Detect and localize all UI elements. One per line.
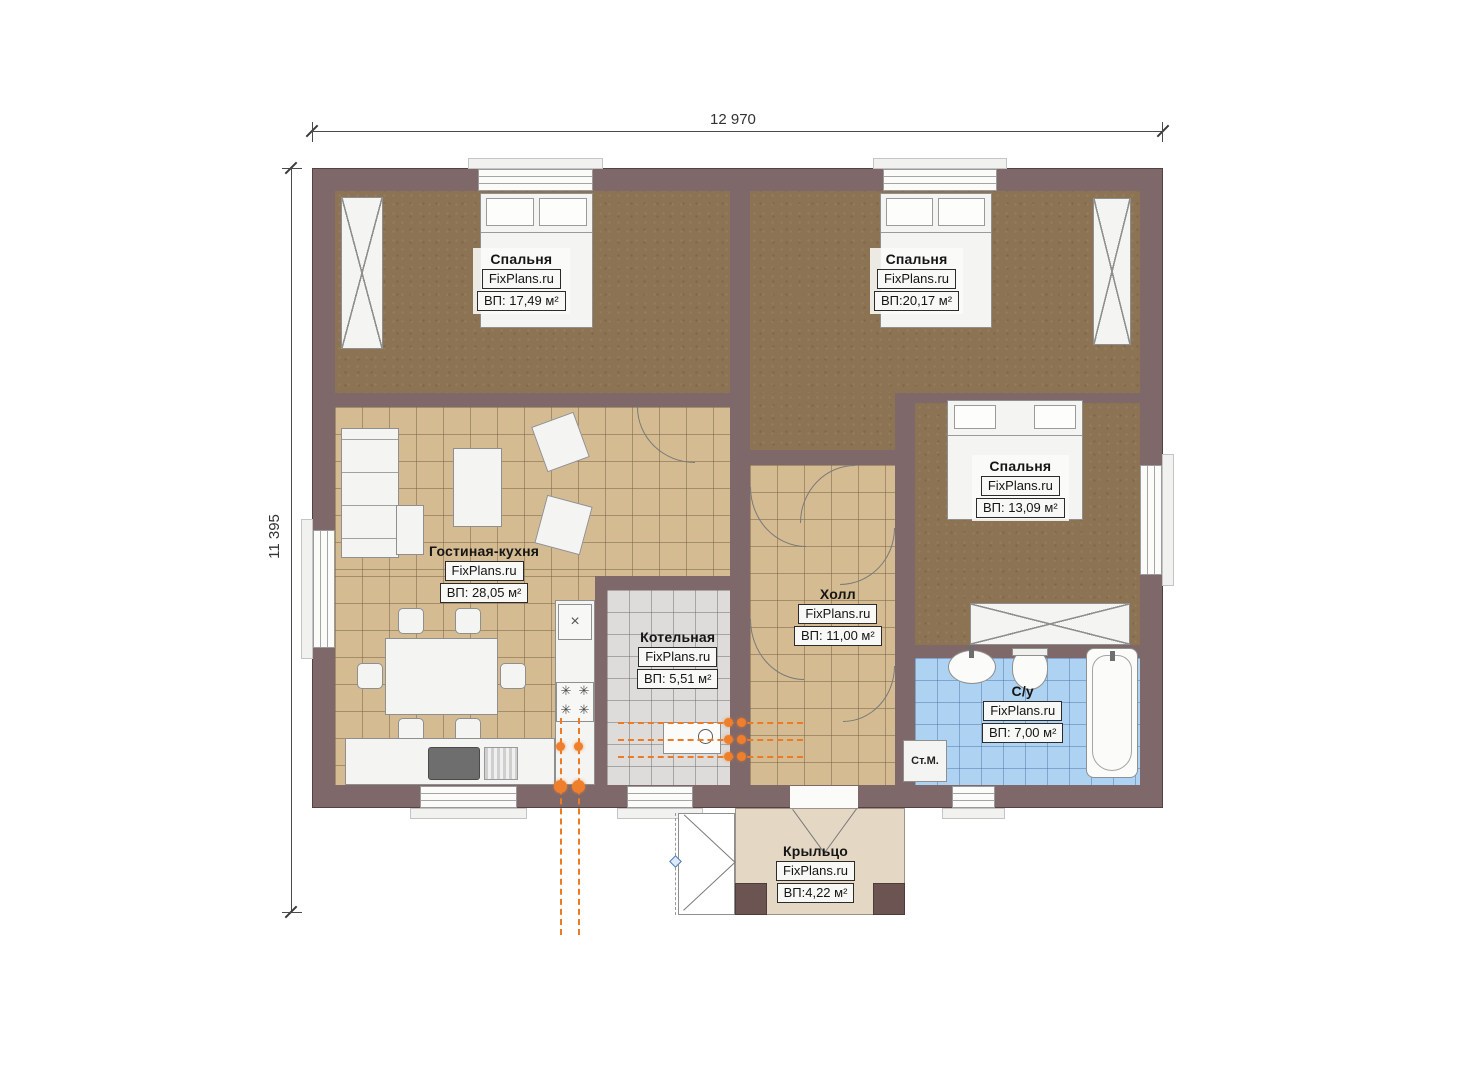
room-name: Спальня: [989, 458, 1051, 474]
porch-pillar: [873, 883, 905, 915]
room-area: ВП: 11,00 м²: [794, 626, 882, 646]
burner-icon: ✳: [575, 683, 593, 702]
gas-node: [554, 780, 567, 793]
bathtub: [1086, 648, 1138, 778]
room-name: С/у: [1012, 683, 1034, 699]
brand-label: FixPlans.ru: [981, 476, 1060, 496]
room-label-porch: Крыльцо FixPlans.ru ВП:4,22 м²: [772, 840, 859, 906]
stove: ✳ ✳ ✳ ✳: [556, 682, 594, 722]
partition-wall: [595, 576, 607, 785]
dimension-width-label: 12 970: [710, 111, 756, 128]
gas-node: [556, 742, 565, 751]
heating-line: [618, 756, 803, 758]
window: [313, 530, 335, 648]
window-sill: [942, 808, 1005, 819]
partition-wall: [858, 450, 895, 465]
porch-pillar: [735, 883, 767, 915]
dining-table: [385, 638, 498, 715]
room-label-bedroom-2: Спальня FixPlans.ru ВП:20,17 м²: [870, 248, 963, 314]
room-label-living-kitchen: Гостиная-кухня FixPlans.ru ВП: 28,05 м²: [425, 540, 543, 606]
heating-line: [618, 739, 803, 741]
pillow: [1034, 405, 1076, 429]
heating-node: [737, 735, 746, 744]
gas-node: [574, 742, 583, 751]
dimension-ext: [1162, 122, 1163, 142]
dining-chair: [500, 663, 526, 689]
brand-label: FixPlans.ru: [445, 561, 524, 581]
window: [478, 169, 593, 191]
brand-label: FixPlans.ru: [798, 604, 877, 624]
porch-steps: [678, 813, 735, 915]
room-name: Холл: [820, 586, 856, 602]
room-name: Гостиная-кухня: [429, 543, 539, 559]
vent-icon: ×: [570, 613, 579, 630]
dining-chair: [398, 608, 424, 634]
partition-wall: [700, 393, 730, 407]
room-area: ВП: 7,00 м²: [982, 723, 1063, 743]
brand-label: FixPlans.ru: [776, 861, 855, 881]
room-name: Крыльцо: [783, 843, 848, 859]
vent-box: ×: [558, 604, 592, 640]
wardrobe: [1093, 198, 1131, 345]
entry-door-opening: [790, 786, 858, 808]
window: [627, 786, 693, 808]
room-area: ВП:4,22 м²: [777, 883, 855, 903]
partition-wall: [730, 191, 750, 485]
gas-node: [572, 780, 585, 793]
window-sill: [301, 519, 313, 659]
window: [1140, 465, 1162, 575]
room-area: ВП: 28,05 м²: [440, 583, 529, 603]
kitchen-sink: [428, 747, 480, 780]
sink-faucet: [969, 646, 974, 658]
brand-label: FixPlans.ru: [638, 647, 717, 667]
brand-label: FixPlans.ru: [482, 269, 561, 289]
dimension-ext: [282, 912, 302, 913]
washing-machine-label: Ст.М.: [911, 755, 939, 767]
room-label-boiler-room: Котельная FixPlans.ru ВП: 5,51 м²: [633, 626, 722, 692]
pillow: [539, 198, 587, 226]
bedroom-2-floor: [750, 393, 895, 450]
tub-faucet: [1110, 651, 1115, 661]
room-name: Спальня: [886, 251, 948, 267]
room-label-bedroom-1: Спальня FixPlans.ru ВП: 17,49 м²: [473, 248, 570, 314]
room-label-bedroom-3: Спальня FixPlans.ru ВП: 13,09 м²: [972, 455, 1069, 521]
pillow: [886, 198, 933, 226]
floor-plan: 12 970 11 395: [0, 0, 1474, 1080]
partition-wall: [895, 585, 915, 645]
partition-wall: [730, 682, 750, 785]
heating-node: [737, 752, 746, 761]
bathtub-inner: [1092, 655, 1132, 771]
room-name: Спальня: [490, 251, 552, 267]
sofa: [341, 428, 399, 558]
window: [883, 169, 997, 191]
boiler-dial: [698, 729, 713, 744]
dimension-ext: [282, 168, 302, 169]
dimension-height-label: 11 395: [266, 514, 283, 559]
brand-label: FixPlans.ru: [877, 269, 956, 289]
blanket-line: [948, 435, 1082, 436]
room-label-hall: Холл FixPlans.ru ВП: 11,00 м²: [790, 583, 886, 649]
wardrobe: [970, 603, 1130, 645]
pillow: [954, 405, 996, 429]
window-sill: [468, 158, 603, 169]
room-area: ВП: 17,49 м²: [477, 291, 566, 311]
heating-node: [737, 718, 746, 727]
burner-icon: ✳: [557, 683, 575, 702]
window-sill: [1162, 454, 1174, 586]
drainboard: [484, 747, 518, 780]
brand-label: FixPlans.ru: [983, 701, 1062, 721]
dining-chair: [455, 608, 481, 634]
partition-wall: [750, 450, 805, 465]
partition-wall: [335, 393, 625, 407]
room-area: ВП: 5,51 м²: [637, 669, 718, 689]
window: [952, 786, 995, 808]
partition-wall: [595, 576, 750, 590]
window-sill: [873, 158, 1007, 169]
washing-machine: Ст.М.: [903, 740, 947, 782]
dimension-ext: [312, 122, 313, 142]
window-sill: [410, 808, 527, 819]
wardrobe: [341, 197, 383, 349]
heating-node: [724, 752, 733, 761]
toilet-tank: [1012, 648, 1048, 656]
heating-line: [618, 722, 803, 724]
coffee-table: [453, 448, 502, 527]
pillow: [938, 198, 985, 226]
room-area: ВП:20,17 м²: [874, 291, 959, 311]
dining-chair: [357, 663, 383, 689]
pillow: [486, 198, 534, 226]
dimension-line-left: [291, 168, 292, 912]
heating-node: [724, 735, 733, 744]
room-name: Котельная: [640, 629, 715, 645]
partition-wall: [895, 658, 915, 668]
room-area: ВП: 13,09 м²: [976, 498, 1065, 518]
dimension-line-top: [312, 131, 1163, 132]
blanket-line: [481, 232, 592, 233]
side-table: [396, 505, 424, 555]
room-label-bathroom: С/у FixPlans.ru ВП: 7,00 м²: [978, 680, 1067, 746]
partition-wall: [895, 403, 915, 528]
window: [420, 786, 517, 808]
blanket-line: [881, 232, 991, 233]
heating-node: [724, 718, 733, 727]
